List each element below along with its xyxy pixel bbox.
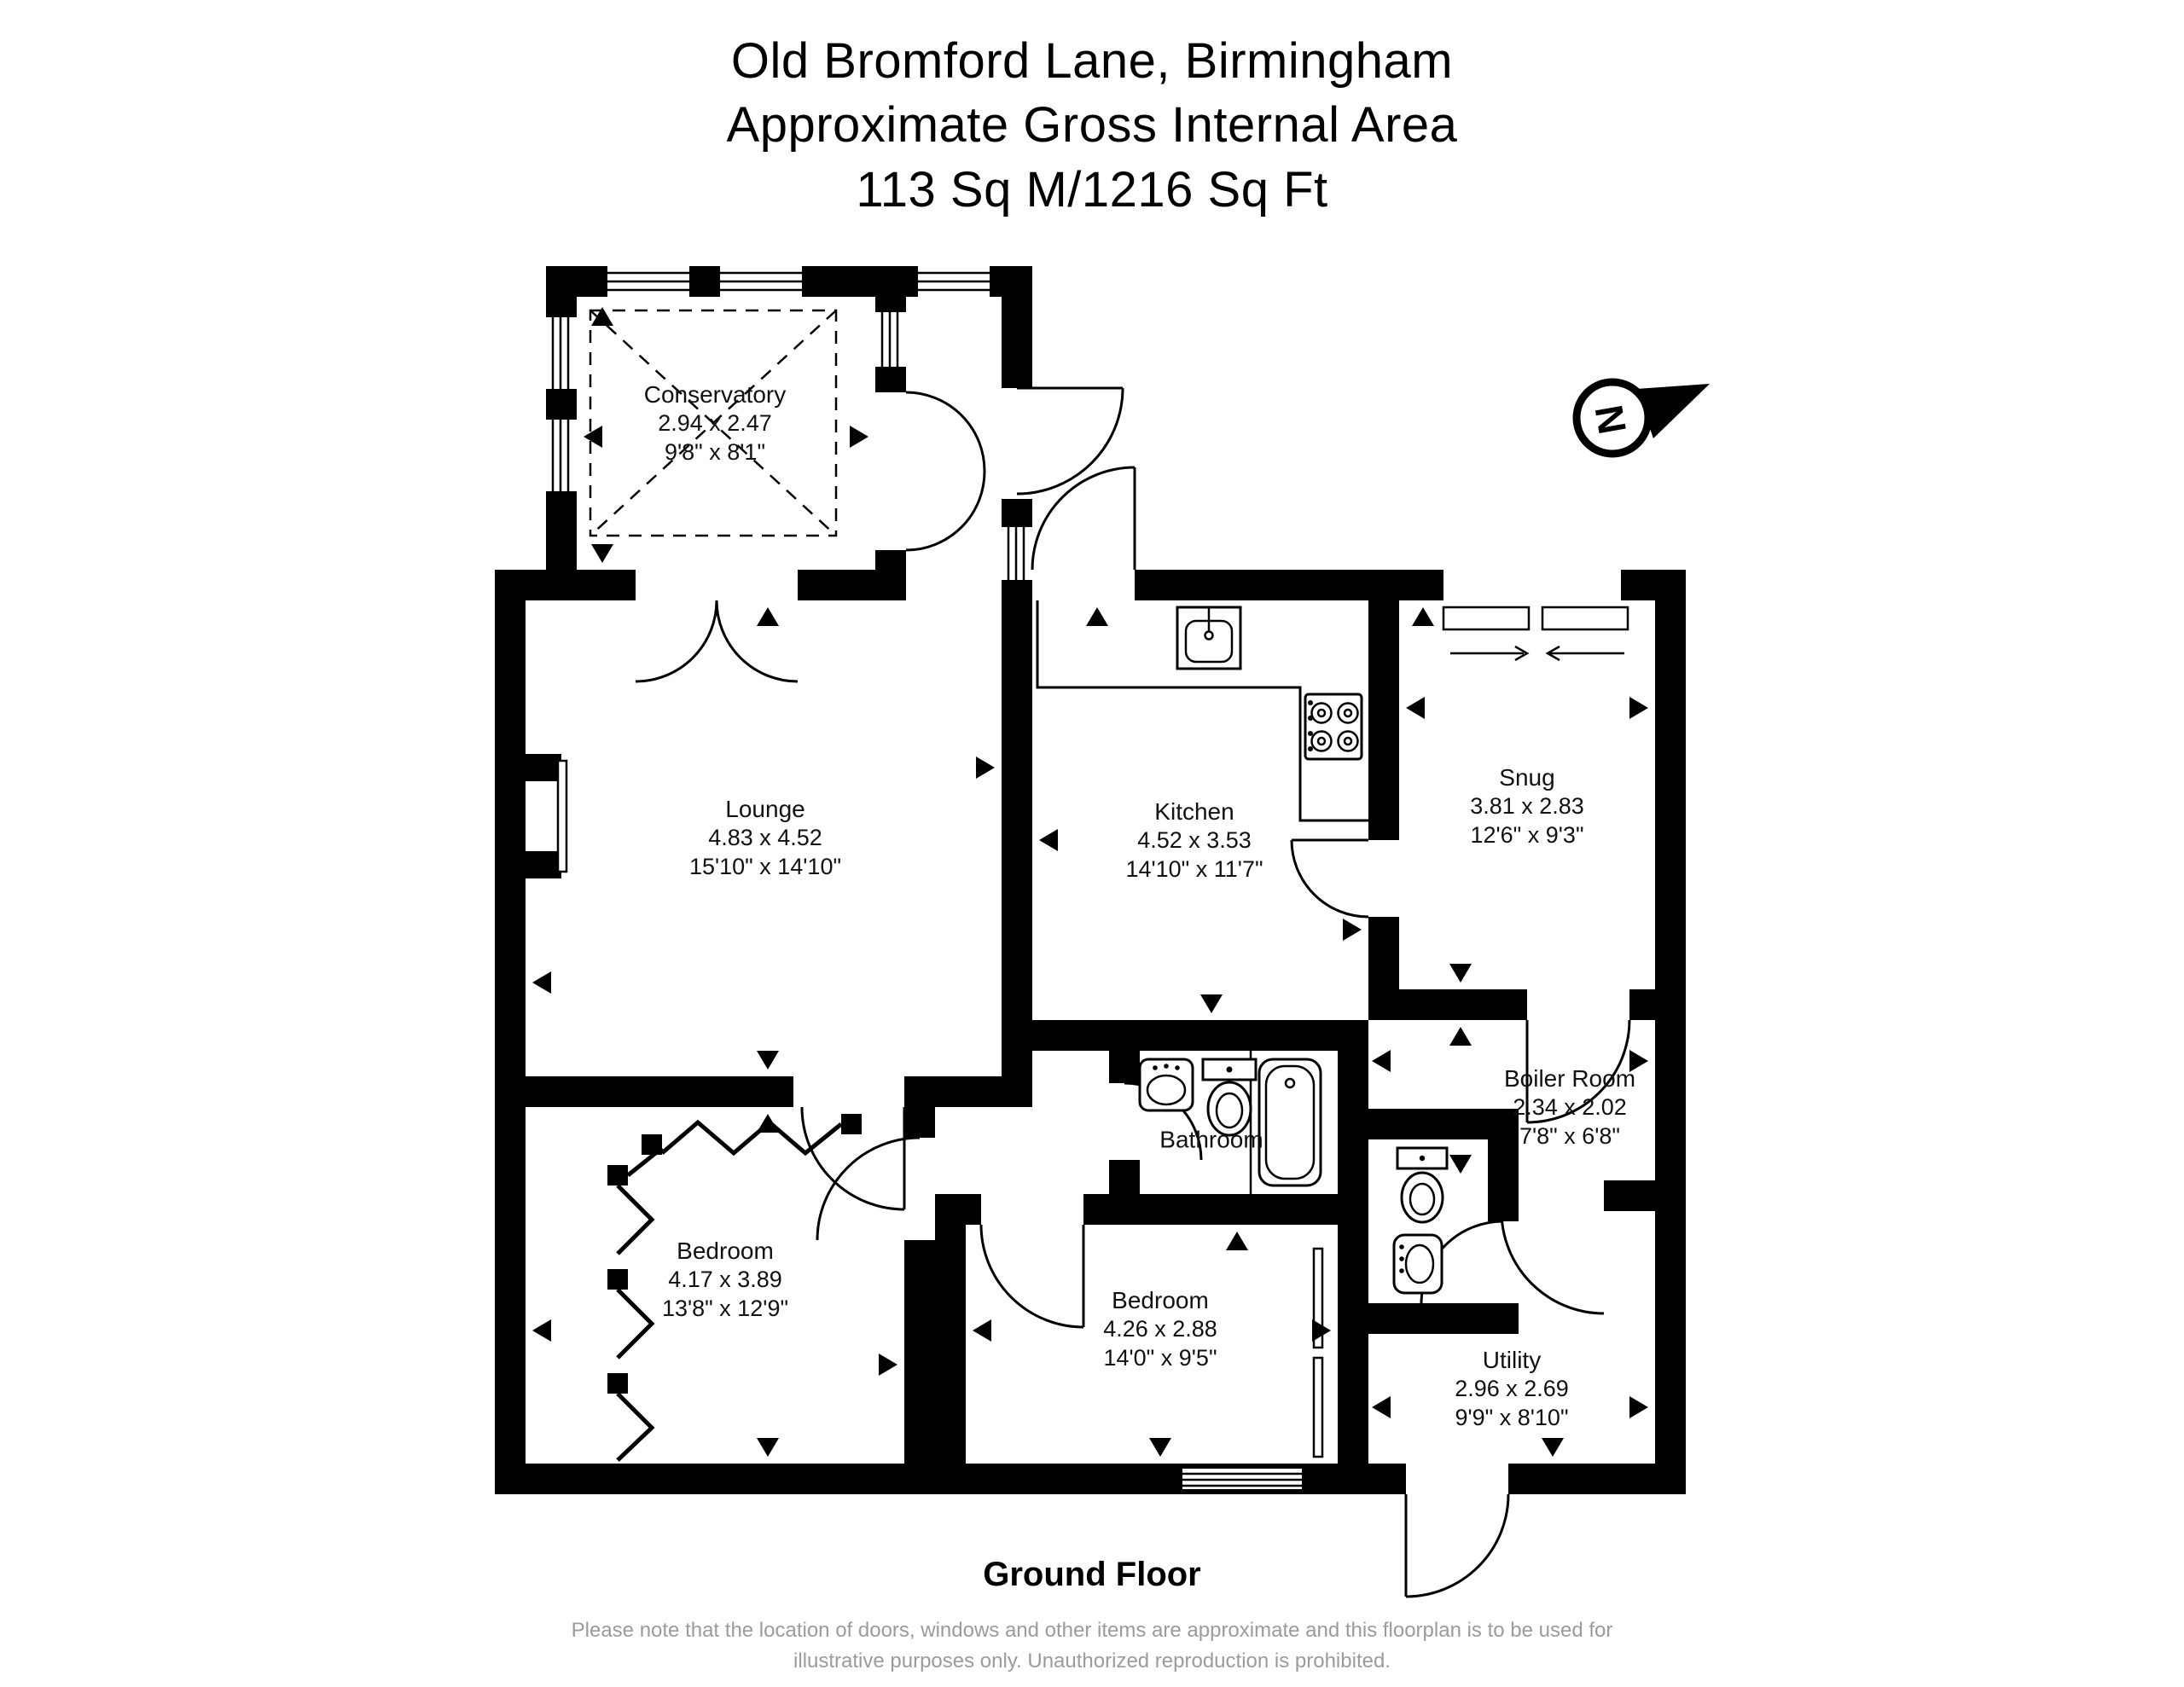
- floor-label: Ground Floor: [983, 1556, 1201, 1594]
- room-dim-imperial: 14'10" x 11'7": [1125, 855, 1263, 884]
- title-area-value: 113 Sq M/1216 Sq Ft: [727, 158, 1458, 222]
- room-dim-metric: 2.34 x 2.02: [1504, 1093, 1635, 1122]
- door-porch-kitchen: [1032, 467, 1135, 570]
- kitchen-sink: [1177, 607, 1240, 669]
- room-name: Snug: [1470, 762, 1584, 792]
- window: [918, 266, 990, 297]
- title-area-label: Approximate Gross Internal Area: [727, 93, 1458, 157]
- floorplan-drawing: N: [0, 0, 2184, 1687]
- room-name: Lounge: [689, 794, 841, 824]
- built-in-wardrobe: [1314, 1249, 1322, 1457]
- room-label-boiler-room: Boiler Room 2.34 x 2.02 7'8" x 6'8": [1504, 1064, 1635, 1151]
- room-dim-imperial: 15'10" x 14'10": [689, 853, 841, 882]
- wc-toilet: [1397, 1148, 1447, 1222]
- wc-basin: [1394, 1235, 1442, 1293]
- window: [607, 266, 689, 297]
- window: [546, 317, 577, 389]
- wc-fixtures: [1394, 1148, 1447, 1293]
- french-doors-conservatory-lounge: [636, 600, 798, 681]
- floorplan-page: N Old Bromford Lane, Birmingham Approxim…: [0, 0, 2184, 1687]
- room-label-bedroom-1: Bedroom 4.17 x 3.89 13'8" x 12'9": [662, 1236, 788, 1324]
- window: [720, 266, 802, 297]
- room-label-bathroom: Bathroom: [1159, 1125, 1263, 1155]
- room-label-utility: Utility 2.96 x 2.69 9'9" x 8'10": [1455, 1345, 1569, 1433]
- door-kitchen-snug: [1292, 840, 1368, 917]
- room-dim-imperial: 14'0" x 9'5": [1103, 1344, 1217, 1373]
- compass-icon: N: [1577, 382, 1710, 454]
- room-dim-imperial: 9'8" x 8'1": [644, 438, 787, 467]
- window: [1182, 1469, 1302, 1489]
- sliding-doors-snug: [1443, 607, 1628, 660]
- window: [875, 312, 906, 367]
- double-doors-conservatory-porch: [906, 392, 985, 550]
- hob: [1305, 694, 1362, 759]
- room-label-conservatory: Conservatory 2.94 x 2.47 9'8" x 8'1": [644, 380, 787, 467]
- room-dim-metric: 2.96 x 2.69: [1455, 1375, 1569, 1404]
- room-label-bedroom-2: Bedroom 4.26 x 2.88 14'0" x 9'5": [1103, 1285, 1217, 1373]
- room-dim-metric: 4.26 x 2.88: [1103, 1315, 1217, 1344]
- room-label-snug: Snug 3.81 x 2.83 12'6" x 9'3": [1470, 762, 1584, 850]
- room-label-lounge: Lounge 4.83 x 4.52 15'10" x 14'10": [689, 794, 841, 882]
- window: [1002, 527, 1032, 580]
- room-dim-metric: 2.94 x 2.47: [644, 409, 787, 438]
- chimney-breast: [526, 754, 566, 878]
- room-name: Bathroom: [1159, 1125, 1263, 1155]
- room-dim-metric: 4.52 x 3.53: [1125, 826, 1263, 855]
- exterior-door-utility: [1406, 1494, 1508, 1597]
- room-name: Boiler Room: [1504, 1064, 1635, 1093]
- room-dim-metric: 4.83 x 4.52: [689, 824, 841, 853]
- title-address: Old Bromford Lane, Birmingham: [727, 29, 1458, 93]
- disclaimer-text: Please note that the location of doors, …: [525, 1615, 1659, 1677]
- bathroom-fixtures: [1140, 1051, 1321, 1194]
- room-dim-imperial: 7'8" x 6'8": [1504, 1122, 1635, 1151]
- room-dim-imperial: 9'9" x 8'10": [1455, 1404, 1569, 1433]
- room-dim-imperial: 12'6" x 9'3": [1470, 821, 1584, 850]
- room-name: Bedroom: [662, 1236, 788, 1266]
- door-utility-corridor: [1501, 1211, 1604, 1313]
- room-label-kitchen: Kitchen 4.52 x 3.53 14'10" x 11'7": [1125, 797, 1263, 884]
- room-dim-imperial: 13'8" x 12'9": [662, 1295, 788, 1324]
- exterior-door-porch: [1017, 388, 1123, 494]
- room-name: Bedroom: [1103, 1285, 1217, 1315]
- window: [546, 420, 577, 491]
- compass-north-letter: N: [1587, 402, 1635, 438]
- room-dim-metric: 3.81 x 2.83: [1470, 792, 1584, 821]
- bath: [1259, 1059, 1321, 1186]
- door-bedroom-2: [981, 1225, 1083, 1327]
- room-name: Kitchen: [1125, 797, 1263, 826]
- page-title: Old Bromford Lane, Birmingham Approximat…: [727, 29, 1458, 222]
- room-name: Conservatory: [644, 380, 787, 409]
- bathroom-sink: [1140, 1059, 1193, 1110]
- room-dim-metric: 4.17 x 3.89: [662, 1266, 788, 1295]
- room-name: Utility: [1455, 1345, 1569, 1375]
